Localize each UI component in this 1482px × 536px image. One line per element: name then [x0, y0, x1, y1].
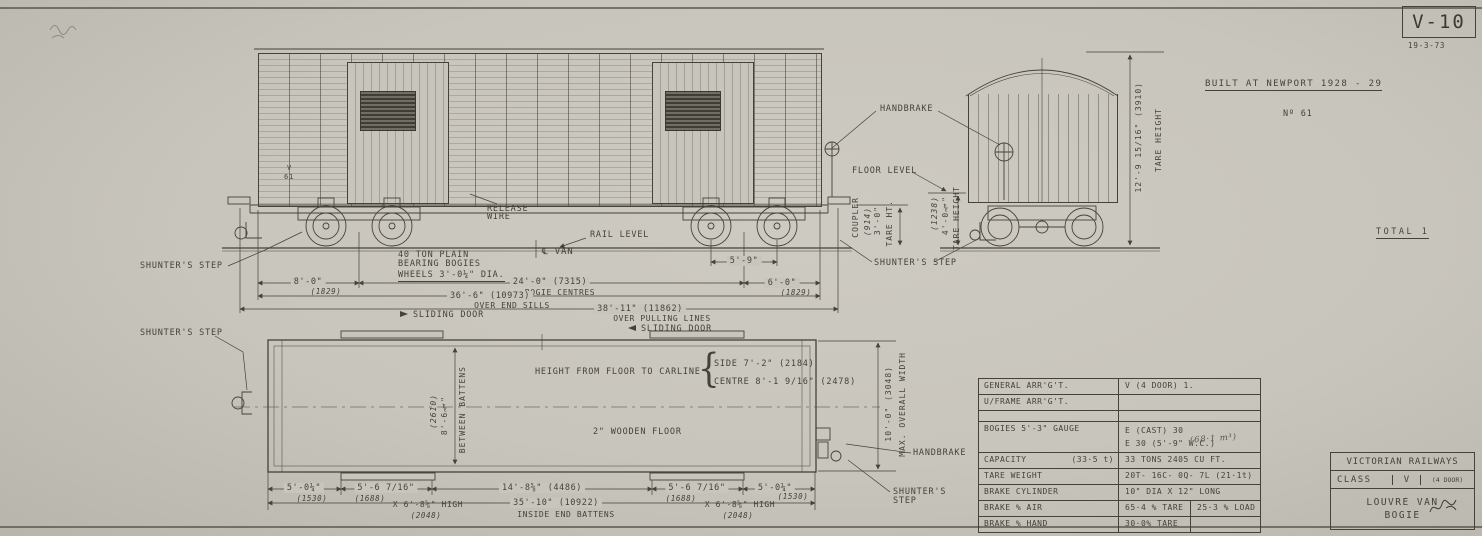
- dim-bogie-centres: 24'-0" (7315): [510, 277, 590, 287]
- spec-value: 10" DIA X 12" LONG: [1119, 485, 1260, 500]
- carline-centre-value: CENTRE 8'-1 9/16" (2478): [714, 378, 856, 387]
- arrow-left-icon: [628, 325, 636, 331]
- spec-label-note: (33·5 t): [1071, 455, 1114, 468]
- plan-dim-2b: X 6'-8⅝" HIGH: [393, 500, 463, 509]
- handbrake-shaft: [825, 142, 839, 197]
- dim-5ft9: 5'-9": [727, 256, 762, 266]
- spec-row-capacity: CAPACITY (33·5 t) 33 TONS 2405 CU FT.: [979, 453, 1260, 469]
- spec-value: [1119, 395, 1260, 410]
- centreline-van-label: ℄ VAN: [542, 248, 573, 257]
- spec-label: BRAKE % HAND: [984, 519, 1048, 532]
- spec-row-brake-hand: BRAKE % HAND 30·0% TARE: [979, 517, 1260, 532]
- spec-row-general: GENERAL ARR'G'T. V (4 DOOR) 1.: [979, 379, 1260, 395]
- floor-level-label: FLOOR LEVEL: [852, 167, 917, 176]
- spec-value-2: 25·3 % LOAD: [1190, 501, 1260, 516]
- spec-label: GENERAL ARR'G'T.: [984, 381, 1069, 394]
- dim-8ft-mm: (1829): [311, 287, 342, 296]
- plan-handbrake-label: HANDBRAKE: [913, 449, 966, 458]
- rail-level-label: RAIL LEVEL: [590, 231, 649, 240]
- coupler-label: COUPLER: [851, 197, 860, 238]
- drawing-number-box: V-10: [1402, 6, 1476, 38]
- plan-dim-1-mm: (1530): [297, 494, 328, 503]
- dim-pulling-lines: 38'-11" (11862): [594, 304, 686, 314]
- total-note: TOTAL 1: [1376, 228, 1429, 239]
- spec-value-1: 30·0% TARE: [1119, 517, 1190, 532]
- end-elevation-lines: [940, 58, 1160, 251]
- spec-row-uframe: U/FRAME ARR'G'T.: [979, 395, 1260, 411]
- plan-dim-2-mm: (1688): [355, 494, 386, 503]
- plan-handbrake-mech: [816, 428, 830, 440]
- class-note: (4 DOOR): [1421, 476, 1474, 484]
- spec-row-brake-air: BRAKE % AIR 65·4 % TARE 25·3 % LOAD: [979, 501, 1260, 517]
- unit-number: Nº 61: [1283, 110, 1313, 119]
- overall-width-dim: 10'-0" (3048): [884, 366, 893, 442]
- plan-dim-2b-mm: (2048): [411, 511, 442, 520]
- shunters-step-bracket-left: [246, 222, 262, 238]
- spec-row-brake-cylinder: BRAKE CYLINDER 10" DIA X 12" LONG: [979, 485, 1260, 501]
- plan-view-lines: [232, 331, 880, 480]
- railway-name: VICTORIAN RAILWAYS: [1331, 453, 1474, 471]
- end-tare-height-label: TARE HEIGHT: [1154, 108, 1163, 172]
- lbl-pulling-lines: OVER PULLING LINES: [613, 314, 711, 323]
- handbrake-label: HANDBRAKE: [880, 105, 933, 114]
- plan-step-right: [831, 451, 841, 461]
- sliding-door-label-2: SLIDING DOOR: [628, 325, 712, 334]
- between-battens-mm: (2610): [429, 394, 438, 429]
- lbl-end-sills: OVER END SILLS: [474, 301, 550, 310]
- overall-width-label: MAX. OVERALL WIDTH: [898, 352, 907, 457]
- sliding-door-text-1: SLIDING DOOR: [413, 310, 484, 320]
- drawing-date: 19-3-73: [1408, 41, 1445, 50]
- shunters-step-label-mid: SHUNTER'S STEP: [874, 259, 957, 268]
- drawing-sheet: V-10 19-3-73 BUILT AT NEWPORT 1928 - 29 …: [0, 0, 1482, 536]
- wheels-note: WHEELS 3'-0¼" DIA.: [398, 271, 505, 282]
- floor-mm: (1238): [930, 196, 939, 231]
- spec-label: BRAKE CYLINDER: [984, 487, 1058, 500]
- sliding-door-text-2: SLIDING DOOR: [641, 324, 712, 334]
- vehicle-name-line2: BOGIE: [1384, 510, 1420, 521]
- plan-step-left: [242, 392, 252, 414]
- vehicle-name-line1: LOUVRE VAN: [1366, 497, 1438, 508]
- end-tare-height-dim: 12'-9 15/16" (3910): [1134, 82, 1143, 193]
- plan-dim-2: 5'-6 7/16": [354, 483, 417, 493]
- spec-value: 20T- 16C- 0Q- 7L (21·1t): [1119, 469, 1260, 484]
- coupler-height: 3'-0": [873, 206, 882, 235]
- plan-dim-4b-mm: (2048): [723, 511, 754, 520]
- spec-label: BRAKE % AIR: [984, 503, 1042, 516]
- plan-shunters-step-right-2: STEP: [893, 497, 917, 506]
- plan-total-label: INSIDE END BATTENS: [517, 510, 615, 519]
- spec-row-tare: TARE WEIGHT 20T- 16C- 0Q- 7L (21·1t): [979, 469, 1260, 485]
- lbl-bogie-centres: BOGIE CENTRES: [525, 288, 595, 297]
- bogies-note-line2: BEARING BOGIES: [398, 260, 481, 269]
- side-elevation-lines: [222, 49, 852, 251]
- spec-value: [1119, 411, 1260, 421]
- between-battens-dim: 8'-6¾": [440, 396, 449, 435]
- release-wire-label-2: WIRE: [487, 213, 511, 222]
- dim-6ft-mm: (1829): [781, 288, 812, 297]
- dim-6ft: 6'-0": [765, 278, 800, 288]
- wooden-floor-label: 2" WOODEN FLOOR: [593, 428, 682, 437]
- coupler-mm: (914): [863, 207, 872, 236]
- class-value: V: [1393, 475, 1421, 485]
- pencil-marks: [50, 26, 76, 39]
- spec-table: GENERAL ARR'G'T. V (4 DOOR) 1. U/FRAME A…: [978, 378, 1261, 533]
- built-at-note: BUILT AT NEWPORT 1928 - 29: [1205, 80, 1382, 91]
- arrow-right-icon: [400, 311, 408, 317]
- class-label: CLASS: [1331, 475, 1393, 485]
- plan-dim-5-mm: (1530): [778, 492, 809, 501]
- spec-value-1: 65·4 % TARE: [1119, 501, 1190, 516]
- carline-label: HEIGHT FROM FLOOR TO CARLINE: [535, 368, 701, 377]
- body-number: 61: [284, 173, 294, 182]
- drawing-number: V-10: [1412, 11, 1466, 33]
- plan-dim-4b: X 6'-8⅝" HIGH: [705, 500, 775, 509]
- body-class-letter: V: [287, 164, 292, 173]
- side-dimension-lines: [240, 52, 1164, 313]
- spec-value-2: [1190, 517, 1260, 532]
- spec-value: 33 TONS 2405 CU FT.: [1119, 453, 1260, 468]
- plan-total-dim: 35'-10" (10922): [510, 498, 602, 508]
- coupler-tare-label: TARE HT.: [885, 200, 894, 247]
- plan-dim-4-mm: (1688): [666, 494, 697, 503]
- spec-value: V (4 DOOR) 1.: [1119, 379, 1260, 394]
- carline-side-value: SIDE 7'-2" (2184): [714, 360, 815, 369]
- spec-row-blank: [979, 411, 1260, 422]
- between-battens-label: BETWEEN BATTENS: [458, 366, 467, 453]
- spec-label: TARE WEIGHT: [984, 471, 1042, 484]
- sliding-door-label-1: SLIDING DOOR: [400, 311, 484, 320]
- title-block: VICTORIAN RAILWAYS CLASS V (4 DOOR) LOUV…: [1330, 452, 1475, 530]
- plan-shunters-step-label-left: SHUNTER'S STEP: [140, 329, 223, 338]
- floor-height: 4'-0¾": [941, 196, 950, 235]
- spec-label: CAPACITY: [984, 455, 1027, 468]
- shunters-step-label-left: SHUNTER'S STEP: [140, 262, 223, 271]
- dim-8ft: 8'-0": [291, 277, 326, 287]
- plan-dim-1: 5'-0¼": [284, 483, 324, 493]
- floor-tare-label: TARE HEIGHT: [952, 186, 961, 250]
- dim-end-sills: 36'-6" (10973): [447, 291, 533, 301]
- plan-dim-3: 14'-8⅝" (4486): [499, 483, 585, 493]
- spec-label: BOGIES 5'-3" GAUGE: [984, 424, 1080, 452]
- spec-label: U/FRAME ARR'G'T.: [984, 397, 1069, 410]
- plan-dim-4: 5'-6 7/16": [665, 483, 728, 493]
